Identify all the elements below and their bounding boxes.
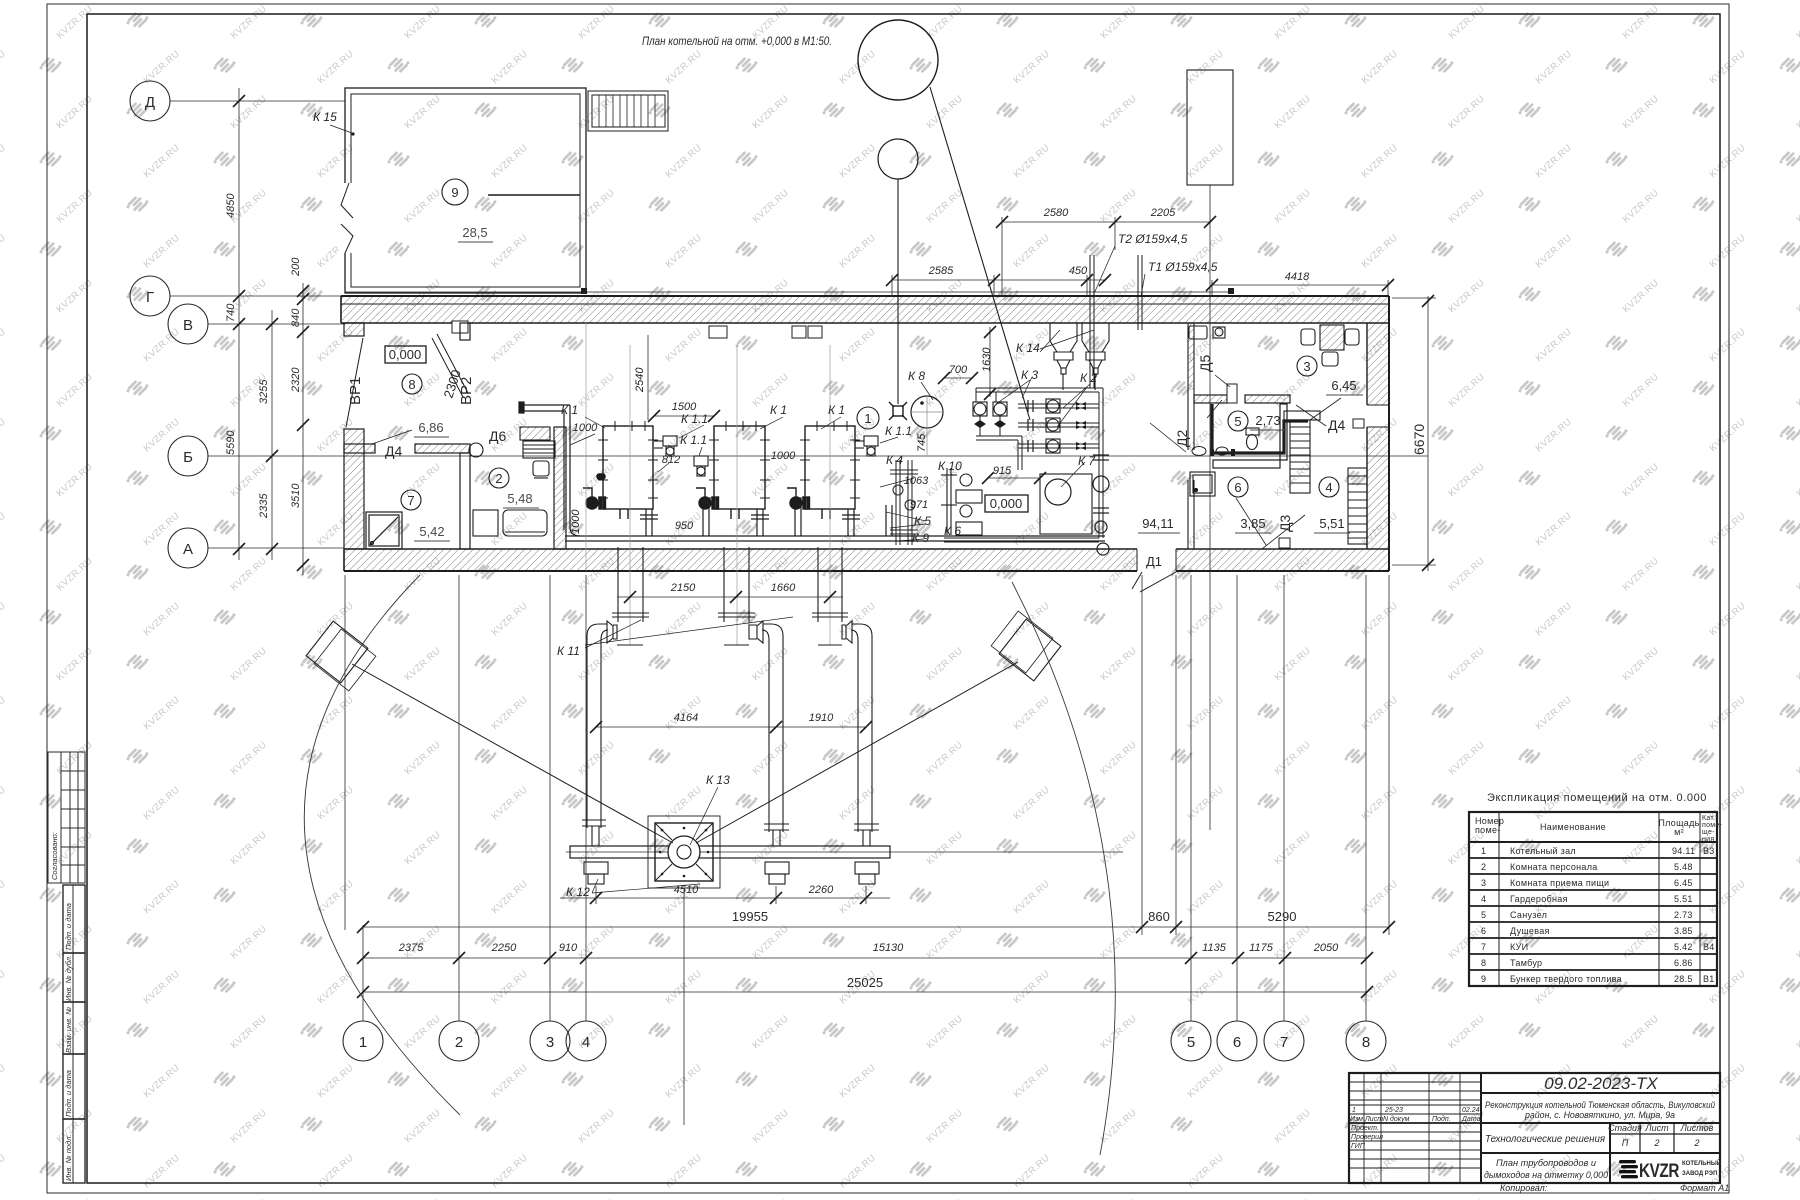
svg-text:812: 812	[662, 454, 680, 466]
svg-text:К 9: К 9	[912, 531, 929, 545]
svg-text:6.86: 6.86	[1674, 958, 1693, 968]
svg-text:Санузел: Санузел	[1510, 910, 1547, 920]
svg-text:2: 2	[455, 1034, 463, 1051]
svg-text:План трубопроводов и: План трубопроводов и	[1496, 1158, 1597, 1169]
svg-text:Т1 Ø159х4,5: Т1 Ø159х4,5	[1148, 260, 1218, 274]
svg-text:7: 7	[1481, 942, 1486, 952]
svg-text:Инв. № подл.: Инв. № подл.	[64, 1134, 73, 1181]
svg-text:5.51: 5.51	[1674, 894, 1693, 904]
svg-text:ГИП: ГИП	[1351, 1143, 1366, 1150]
svg-text:Гардеробная: Гардеробная	[1510, 894, 1568, 904]
svg-text:2: 2	[1693, 1138, 1699, 1148]
svg-text:Лист: Лист	[1644, 1123, 1669, 1133]
svg-text:Листов: Листов	[1680, 1123, 1714, 1133]
svg-text:П: П	[1622, 1138, 1629, 1148]
svg-text:Реконструкция котельной Тюмен: Реконструкция котельной Тюменская област…	[1485, 1100, 1715, 1110]
svg-text:Комната персонала: Комната персонала	[1510, 862, 1598, 872]
svg-text:7: 7	[1280, 1034, 1288, 1051]
svg-text:Инв. № дубл.: Инв. № дубл.	[64, 955, 73, 1001]
svg-text:6: 6	[1234, 480, 1241, 495]
svg-text:4: 4	[1325, 480, 1332, 495]
svg-text:5290: 5290	[1268, 909, 1297, 924]
svg-text:28.5: 28.5	[1674, 974, 1693, 984]
svg-text:Д6: Д6	[489, 428, 506, 444]
svg-text:9: 9	[451, 185, 458, 200]
svg-text:5: 5	[1187, 1034, 1195, 1051]
svg-text:Котельный зал: Котельный зал	[1510, 846, 1576, 856]
svg-text:1910: 1910	[809, 712, 834, 724]
svg-text:6,45: 6,45	[1331, 378, 1356, 393]
svg-text:4: 4	[582, 1034, 590, 1051]
svg-text:2375: 2375	[398, 942, 424, 954]
svg-text:2260: 2260	[808, 884, 834, 896]
svg-text:19955: 19955	[732, 909, 768, 924]
svg-text:Д4: Д4	[1328, 417, 1345, 433]
svg-text:25-23: 25-23	[1384, 1107, 1403, 1114]
svg-text:1: 1	[359, 1034, 367, 1051]
svg-text:А: А	[183, 541, 193, 558]
svg-text:ще-: ще-	[1702, 829, 1715, 836]
svg-text:К 1: К 1	[828, 403, 845, 417]
svg-text:Экспликация помещений на о: Экспликация помещений на отм. 0.000	[1487, 792, 1707, 804]
svg-text:Согласовано:: Согласовано:	[50, 832, 59, 880]
svg-text:Д1: Д1	[1146, 554, 1162, 569]
svg-text:5590: 5590	[225, 430, 237, 455]
svg-text:К 10: К 10	[938, 459, 962, 473]
svg-text:Проверил: Проверил	[1351, 1134, 1383, 1141]
svg-text:К 12: К 12	[566, 885, 590, 899]
svg-text:КУИ: КУИ	[1510, 942, 1528, 952]
svg-text:К 13: К 13	[706, 773, 730, 787]
svg-text:поме-: поме-	[1702, 822, 1723, 829]
svg-text:Подп.: Подп.	[1432, 1115, 1451, 1123]
svg-text:15130: 15130	[873, 942, 904, 954]
svg-text:N докум: N докум	[1383, 1115, 1410, 1123]
svg-text:3255: 3255	[258, 379, 270, 404]
svg-text:поме-: поме-	[1475, 825, 1501, 835]
svg-text:1660: 1660	[771, 582, 796, 594]
svg-text:2050: 2050	[1313, 942, 1339, 954]
svg-text:1000: 1000	[570, 509, 582, 534]
svg-text:район, с. Нововяткино, ул. Мир: район, с. Нововяткино, ул. Мира, 9а	[1524, 1110, 1675, 1120]
svg-text:740: 740	[225, 303, 237, 322]
svg-text:План котельной на отм. +0,000: План котельной на отм. +0,000 в М1:50.	[642, 34, 832, 48]
svg-text:Д5: Д5	[1197, 355, 1213, 372]
svg-text:КОТЕЛЬНЫЙ: КОТЕЛЬНЫЙ	[1682, 1159, 1721, 1167]
svg-text:Комната приема пищи: Комната приема пищи	[1510, 878, 1609, 888]
svg-text:Технологические решения: Технологические решения	[1485, 1134, 1606, 1145]
svg-text:м²: м²	[1674, 827, 1684, 837]
svg-text:Бункер твердого топлива: Бункер твердого топлива	[1510, 974, 1622, 984]
svg-text:Д4: Д4	[385, 443, 402, 459]
svg-text:28,5: 28,5	[462, 225, 487, 240]
svg-text:6: 6	[1233, 1034, 1241, 1051]
svg-text:8: 8	[408, 377, 415, 392]
svg-text:2540: 2540	[634, 367, 646, 393]
svg-text:1000: 1000	[771, 450, 796, 462]
svg-text:Кат.*: Кат.*	[1702, 815, 1718, 822]
svg-text:5,51: 5,51	[1319, 516, 1344, 531]
svg-text:700: 700	[949, 364, 968, 376]
svg-text:Б: Б	[183, 449, 193, 466]
svg-text:В: В	[183, 317, 193, 334]
svg-text:5: 5	[1481, 910, 1486, 920]
svg-text:Лист: Лист	[1364, 1116, 1383, 1123]
svg-text:0,000: 0,000	[389, 347, 422, 362]
svg-text:25025: 25025	[847, 975, 883, 990]
svg-text:2: 2	[495, 471, 502, 486]
svg-text:3510: 3510	[290, 483, 302, 508]
svg-text:Д: Д	[145, 94, 155, 111]
svg-text:5,48: 5,48	[507, 491, 532, 506]
svg-text:ния: ния	[1702, 836, 1714, 843]
svg-text:Стадия: Стадия	[1608, 1123, 1642, 1133]
svg-text:94,11: 94,11	[1142, 516, 1174, 531]
svg-text:4418: 4418	[1285, 271, 1310, 283]
svg-text:2335: 2335	[258, 493, 270, 519]
svg-text:5.48: 5.48	[1674, 862, 1693, 872]
svg-text:Т2 Ø159х4,5: Т2 Ø159х4,5	[1118, 232, 1188, 246]
svg-text:2580: 2580	[1043, 207, 1069, 219]
svg-text:Дата: Дата	[1461, 1116, 1481, 1123]
svg-text:6.45: 6.45	[1674, 878, 1693, 888]
svg-text:ВР1: ВР1	[347, 377, 364, 405]
svg-text:1135: 1135	[1202, 942, 1227, 954]
svg-text:Формат А1: Формат А1	[1680, 1183, 1729, 1193]
svg-text:Наименование: Наименование	[1540, 822, 1606, 832]
svg-text:2320: 2320	[290, 367, 302, 393]
svg-text:02.24: 02.24	[1462, 1107, 1480, 1114]
svg-text:К 1.1: К 1.1	[885, 424, 912, 438]
svg-text:3.85: 3.85	[1674, 926, 1693, 936]
svg-text:94.11: 94.11	[1672, 846, 1695, 856]
svg-text:К 14: К 14	[1016, 341, 1040, 355]
svg-text:745: 745	[916, 433, 928, 452]
svg-text:5,42: 5,42	[419, 524, 444, 539]
svg-text:KVZR: KVZR	[1639, 1161, 1680, 1182]
svg-text:1500: 1500	[672, 401, 697, 413]
svg-text:910: 910	[559, 942, 578, 954]
svg-text:840: 840	[290, 308, 302, 327]
svg-text:6,86: 6,86	[418, 420, 443, 435]
svg-text:6: 6	[1481, 926, 1486, 936]
svg-text:К 8: К 8	[908, 369, 925, 383]
svg-text:К 11: К 11	[557, 644, 580, 658]
svg-text:8: 8	[1362, 1034, 1370, 1051]
svg-text:9: 9	[1481, 974, 1486, 984]
svg-text:2250: 2250	[491, 942, 517, 954]
svg-text:1630: 1630	[981, 347, 993, 372]
svg-text:ЗАВОД РЭП: ЗАВОД РЭП	[1682, 1171, 1717, 1177]
svg-text:3,85: 3,85	[1240, 516, 1265, 531]
svg-text:Проект.: Проект.	[1351, 1125, 1379, 1132]
svg-text:К 4: К 4	[886, 453, 903, 467]
svg-text:2150: 2150	[670, 582, 696, 594]
svg-text:К 1.1: К 1.1	[681, 412, 708, 426]
svg-text:дымоходов на отметку 0,000: дымоходов на отметку 0,000	[1484, 1170, 1609, 1181]
svg-text:3: 3	[1303, 359, 1310, 374]
svg-text:09.02-2023-ТХ: 09.02-2023-ТХ	[1544, 1074, 1658, 1093]
svg-text:2585: 2585	[928, 265, 954, 277]
svg-text:0,000: 0,000	[990, 496, 1023, 511]
svg-text:1175: 1175	[1249, 942, 1274, 954]
svg-text:3: 3	[546, 1034, 554, 1051]
svg-text:К 7: К 7	[1078, 454, 1096, 468]
svg-text:Подп. и дата: Подп. и дата	[64, 1070, 73, 1117]
svg-text:1: 1	[864, 411, 871, 426]
svg-text:915: 915	[993, 465, 1012, 477]
svg-text:2205: 2205	[1150, 207, 1176, 219]
svg-text:5.42: 5.42	[1674, 942, 1693, 952]
svg-text:В3: В3	[1703, 846, 1715, 856]
svg-text:8: 8	[1481, 958, 1486, 968]
svg-text:Взам. инв. №: Взам. инв. №	[64, 1007, 73, 1053]
svg-text:1: 1	[1481, 846, 1486, 856]
svg-text:В4: В4	[1703, 942, 1715, 952]
svg-text:2: 2	[1481, 862, 1486, 872]
svg-text:5: 5	[1234, 414, 1241, 429]
svg-text:2.73: 2.73	[1674, 910, 1693, 920]
svg-text:4164: 4164	[674, 712, 698, 724]
svg-text:В1: В1	[1703, 974, 1715, 984]
svg-text:2,73: 2,73	[1255, 413, 1280, 428]
svg-text:К 1: К 1	[561, 403, 578, 417]
svg-text:3: 3	[1481, 878, 1486, 888]
svg-text:К 15: К 15	[313, 110, 337, 124]
svg-text:Изм: Изм	[1350, 1116, 1363, 1123]
svg-text:4: 4	[1481, 894, 1486, 904]
svg-text:450: 450	[1069, 265, 1088, 277]
svg-text:Г: Г	[146, 289, 154, 306]
svg-text:К 1: К 1	[770, 403, 787, 417]
svg-text:1000: 1000	[573, 422, 598, 434]
svg-text:Тамбур: Тамбур	[1510, 958, 1542, 968]
svg-text:950: 950	[675, 520, 694, 532]
svg-text:2: 2	[1653, 1138, 1659, 1148]
svg-text:К 5: К 5	[914, 514, 931, 528]
svg-text:Подп. и дата: Подп. и дата	[64, 903, 73, 950]
svg-text:4850: 4850	[225, 193, 237, 218]
svg-text:7: 7	[407, 493, 414, 508]
svg-text:Душевая: Душевая	[1510, 926, 1550, 936]
svg-text:200: 200	[290, 257, 302, 277]
svg-text:6670: 6670	[1411, 424, 1427, 455]
svg-text:Д3: Д3	[1277, 515, 1293, 532]
svg-text:Копировал:: Копировал:	[1500, 1183, 1548, 1193]
svg-text:860: 860	[1148, 909, 1170, 924]
svg-text:1: 1	[1352, 1107, 1356, 1114]
